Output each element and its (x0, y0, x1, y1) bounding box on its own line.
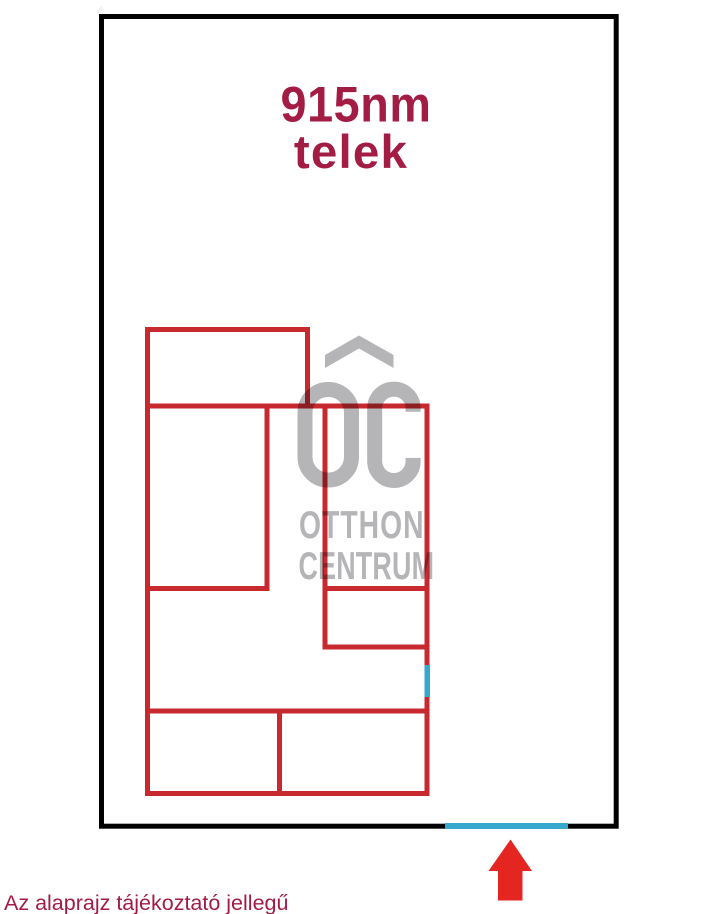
svg-text:915nm: 915nm (281, 77, 432, 133)
svg-text:telek: telek (294, 126, 408, 179)
svg-text:Az alaprajz tájékoztató jelleg: Az alaprajz tájékoztató jellegű (4, 891, 288, 914)
svg-text:OTTHON: OTTHON (299, 504, 425, 547)
svg-text:CENTRUM: CENTRUM (299, 545, 435, 588)
